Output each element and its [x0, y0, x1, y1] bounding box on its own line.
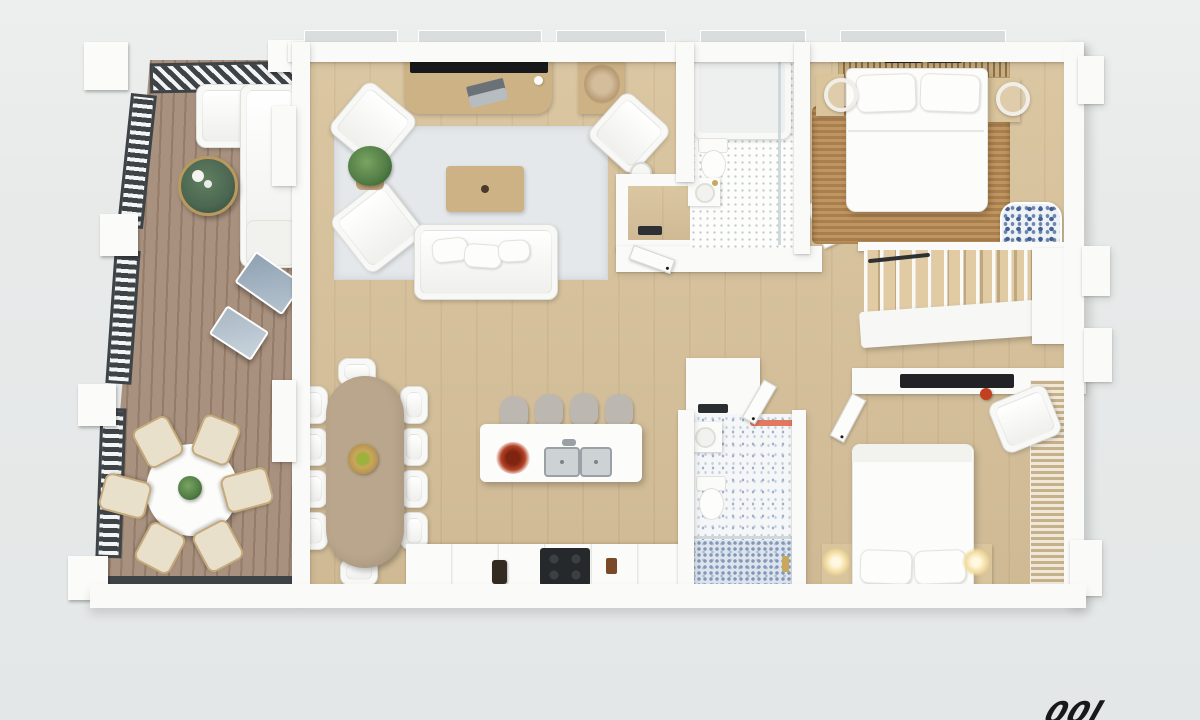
wall-right-bump-1	[1078, 56, 1104, 104]
wall-right	[1064, 42, 1084, 606]
floor-plan-render: 00l	[0, 0, 1200, 720]
wall-bottom	[90, 584, 1086, 608]
wall-bath2-right	[792, 410, 806, 590]
wall-right-bump-2	[1082, 246, 1110, 296]
sofa-pillow-2	[463, 243, 503, 270]
wall-right-bump-3	[1084, 328, 1112, 382]
exterior-walls	[0, 0, 1200, 720]
wall-bath1-right	[794, 42, 810, 254]
wall-left-bump-2	[272, 380, 296, 462]
sofa-pillow-3	[497, 239, 530, 263]
wall-mid-lower	[678, 410, 694, 590]
wall-mid-upper	[676, 42, 694, 182]
watermark-partial-logo: 00l	[1040, 696, 1108, 720]
wall-left-bump-1	[272, 106, 296, 186]
